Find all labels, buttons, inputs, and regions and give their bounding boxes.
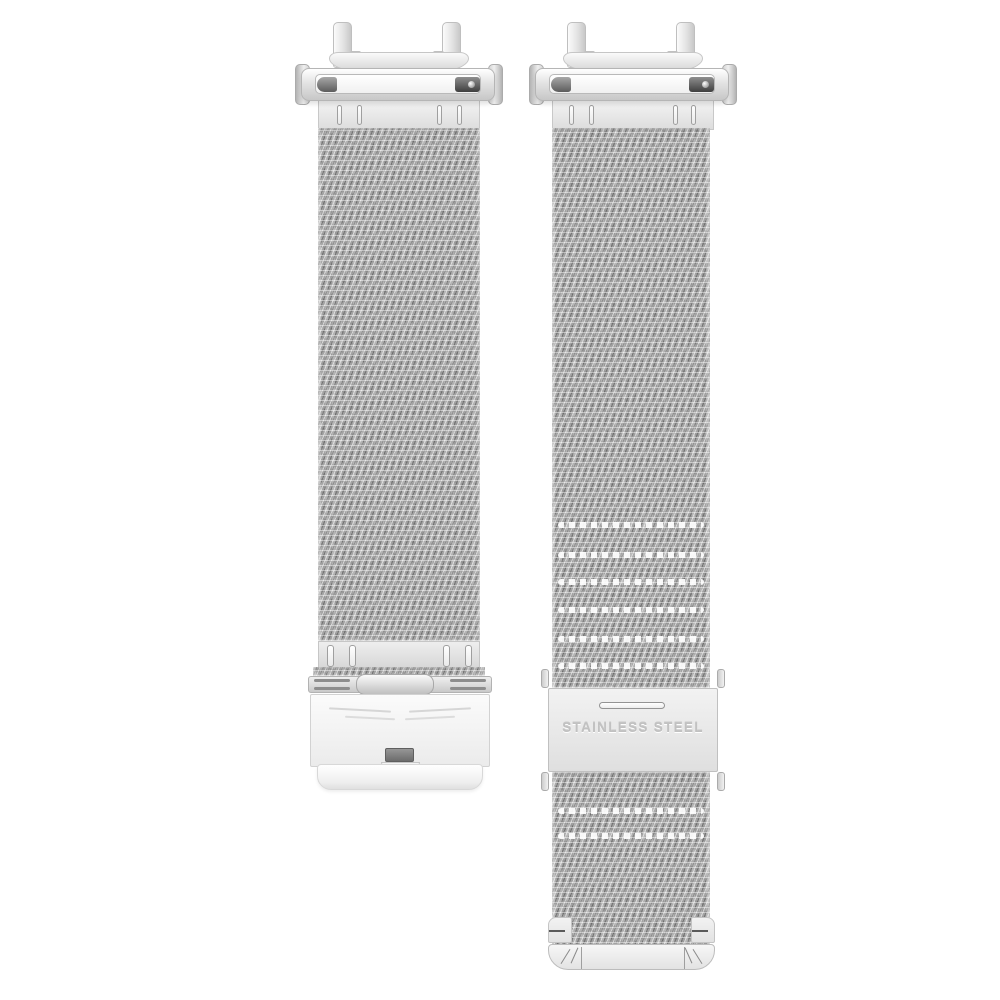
clasp-etch-line: [409, 707, 471, 712]
tip-shoulder-left: [548, 917, 572, 943]
left-mesh-band: [318, 128, 480, 641]
right-slotted-end-plate: [552, 101, 714, 130]
tip-seam-diagonal: [693, 949, 703, 964]
mesh-shine-row: [558, 607, 704, 613]
clasp-etch-line: [405, 716, 455, 721]
right-lug-connector: [533, 22, 733, 132]
left-foldover-clasp-plate: [310, 694, 490, 767]
hinge-barrel: [356, 674, 434, 695]
mesh-shine-row: [558, 552, 704, 558]
right-mesh-band-lower: [552, 772, 710, 948]
tip-seam-diagonal: [561, 949, 571, 964]
right-spring-bar-pin-right: [689, 77, 714, 92]
spring-bar-slot: [465, 645, 472, 667]
spring-bar-slot: [327, 645, 334, 667]
buckle-side-tab: [541, 772, 549, 791]
slide-buckle: STAINLESS STEEL: [548, 688, 718, 772]
spring-bar-slot: [437, 105, 442, 125]
clasp-etch-line: [345, 716, 395, 721]
mesh-shine-row: [558, 663, 704, 669]
left-clasp-under-band: [317, 764, 483, 790]
left-clasp-hinge: [308, 676, 492, 693]
strap-tip-cap: [548, 944, 715, 970]
spring-bar-slot: [349, 645, 356, 667]
hinge-detail: [450, 679, 486, 682]
mesh-shine-row: [558, 636, 704, 642]
spring-bar-slot: [457, 105, 462, 125]
right-spring-bar-pin-left: [551, 77, 571, 92]
left-slotted-end-plate: [318, 101, 480, 130]
spring-bar-slot: [357, 105, 362, 125]
clasp-etch-line: [329, 707, 391, 712]
mesh-shine-row: [558, 833, 704, 839]
spring-bar-slot: [337, 105, 342, 125]
buckle-engraving-text: STAINLESS STEEL: [549, 720, 717, 735]
spring-bar-slot: [589, 105, 594, 125]
tip-seam-diagonal: [685, 948, 693, 964]
left-lug-connector: [299, 22, 499, 132]
hinge-detail: [450, 687, 486, 690]
left-lower-slotted-plate: [318, 641, 480, 668]
buckle-side-tab: [717, 669, 725, 688]
spring-bar-slot: [691, 105, 696, 125]
left-spring-bar-pin-left: [317, 77, 337, 92]
spring-bar-slot: [673, 105, 678, 125]
right-mesh-band-upper: [552, 128, 710, 688]
buckle-slot: [599, 702, 665, 709]
hinge-detail: [314, 687, 350, 690]
tip-shoulder-right: [691, 917, 715, 943]
left-spring-bar-pin-right: [455, 77, 480, 92]
tip-seam: [581, 947, 582, 969]
buckle-side-tab: [717, 772, 725, 791]
mesh-shine-row: [558, 522, 704, 528]
tip-seam-diagonal: [571, 948, 579, 964]
spring-bar-slot: [569, 105, 574, 125]
mesh-shine-row: [558, 579, 704, 585]
spring-bar-slot: [443, 645, 450, 667]
product-photo: STAINLESS STEEL: [0, 0, 1000, 1000]
hinge-detail: [314, 679, 350, 682]
buckle-side-tab: [541, 669, 549, 688]
mesh-shine-row: [558, 808, 704, 814]
clasp-release-button: [385, 748, 414, 762]
